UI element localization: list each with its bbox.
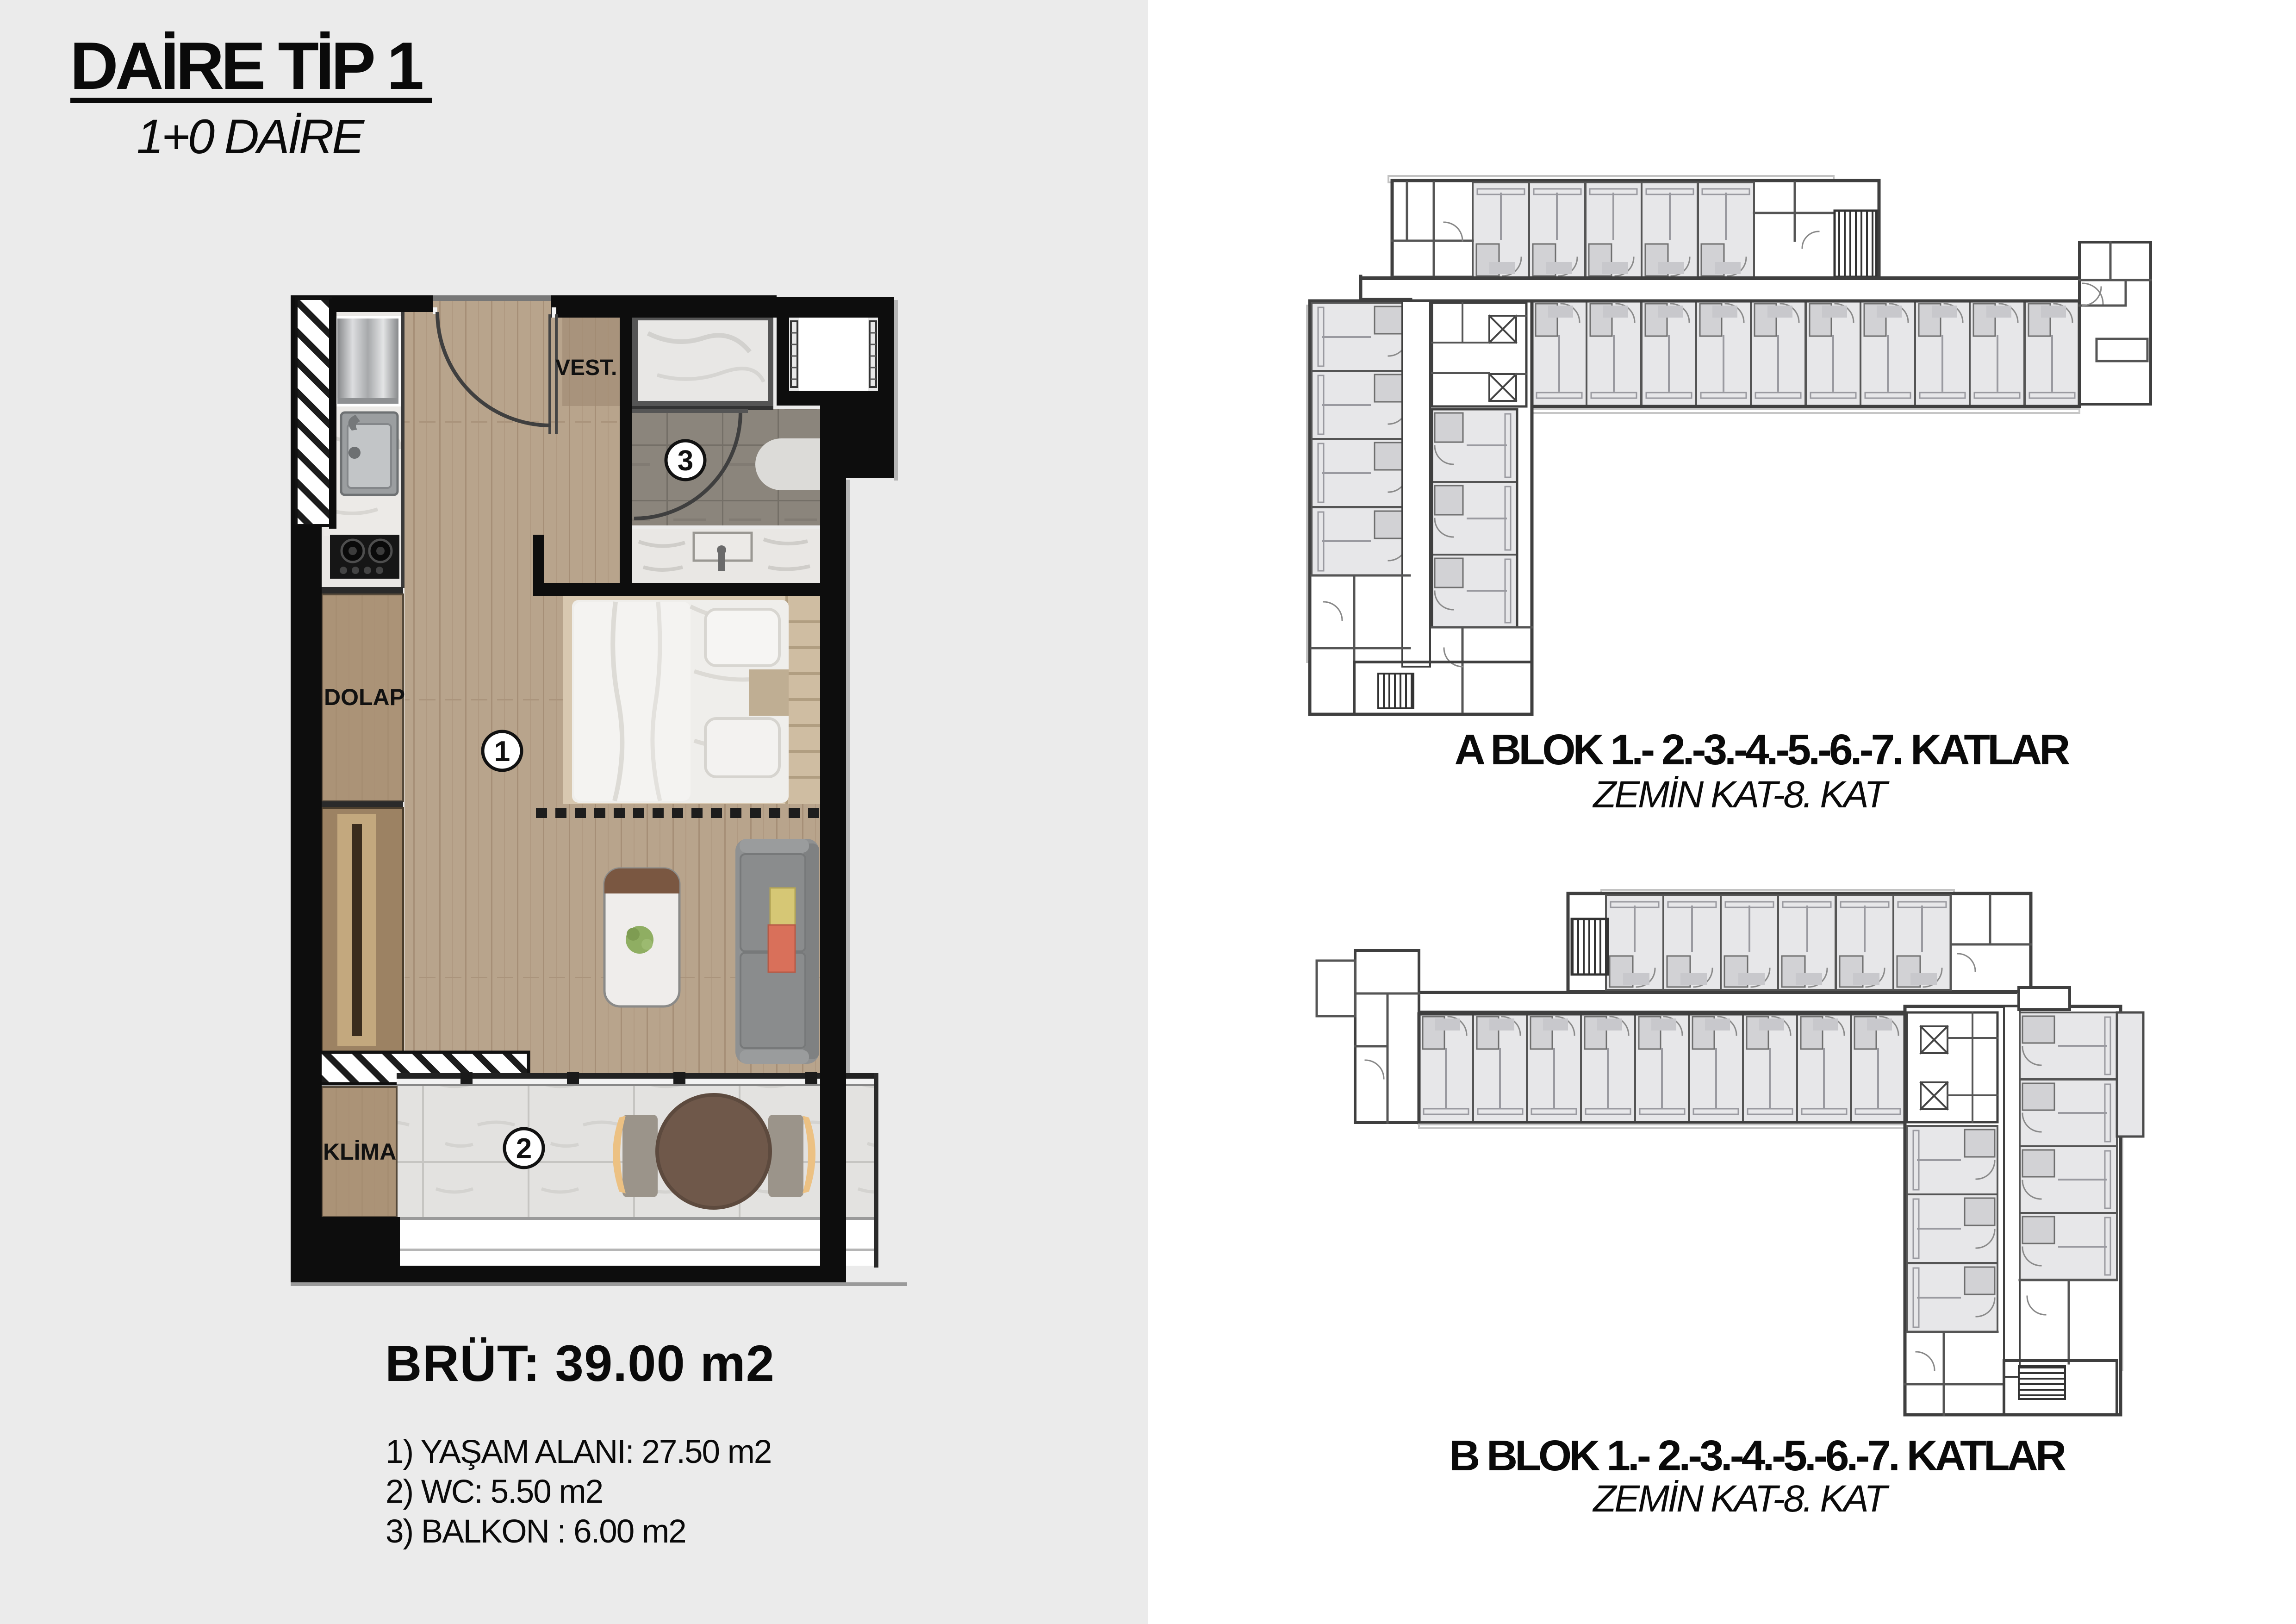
svg-text:DOLAP: DOLAP (324, 684, 405, 710)
svg-text:1: 1 (494, 736, 510, 768)
svg-text:3: 3 (678, 445, 693, 477)
svg-text:VEST.: VEST. (555, 356, 617, 380)
svg-text:2: 2 (516, 1133, 532, 1165)
svg-text:KLİMA: KLİMA (323, 1139, 396, 1165)
